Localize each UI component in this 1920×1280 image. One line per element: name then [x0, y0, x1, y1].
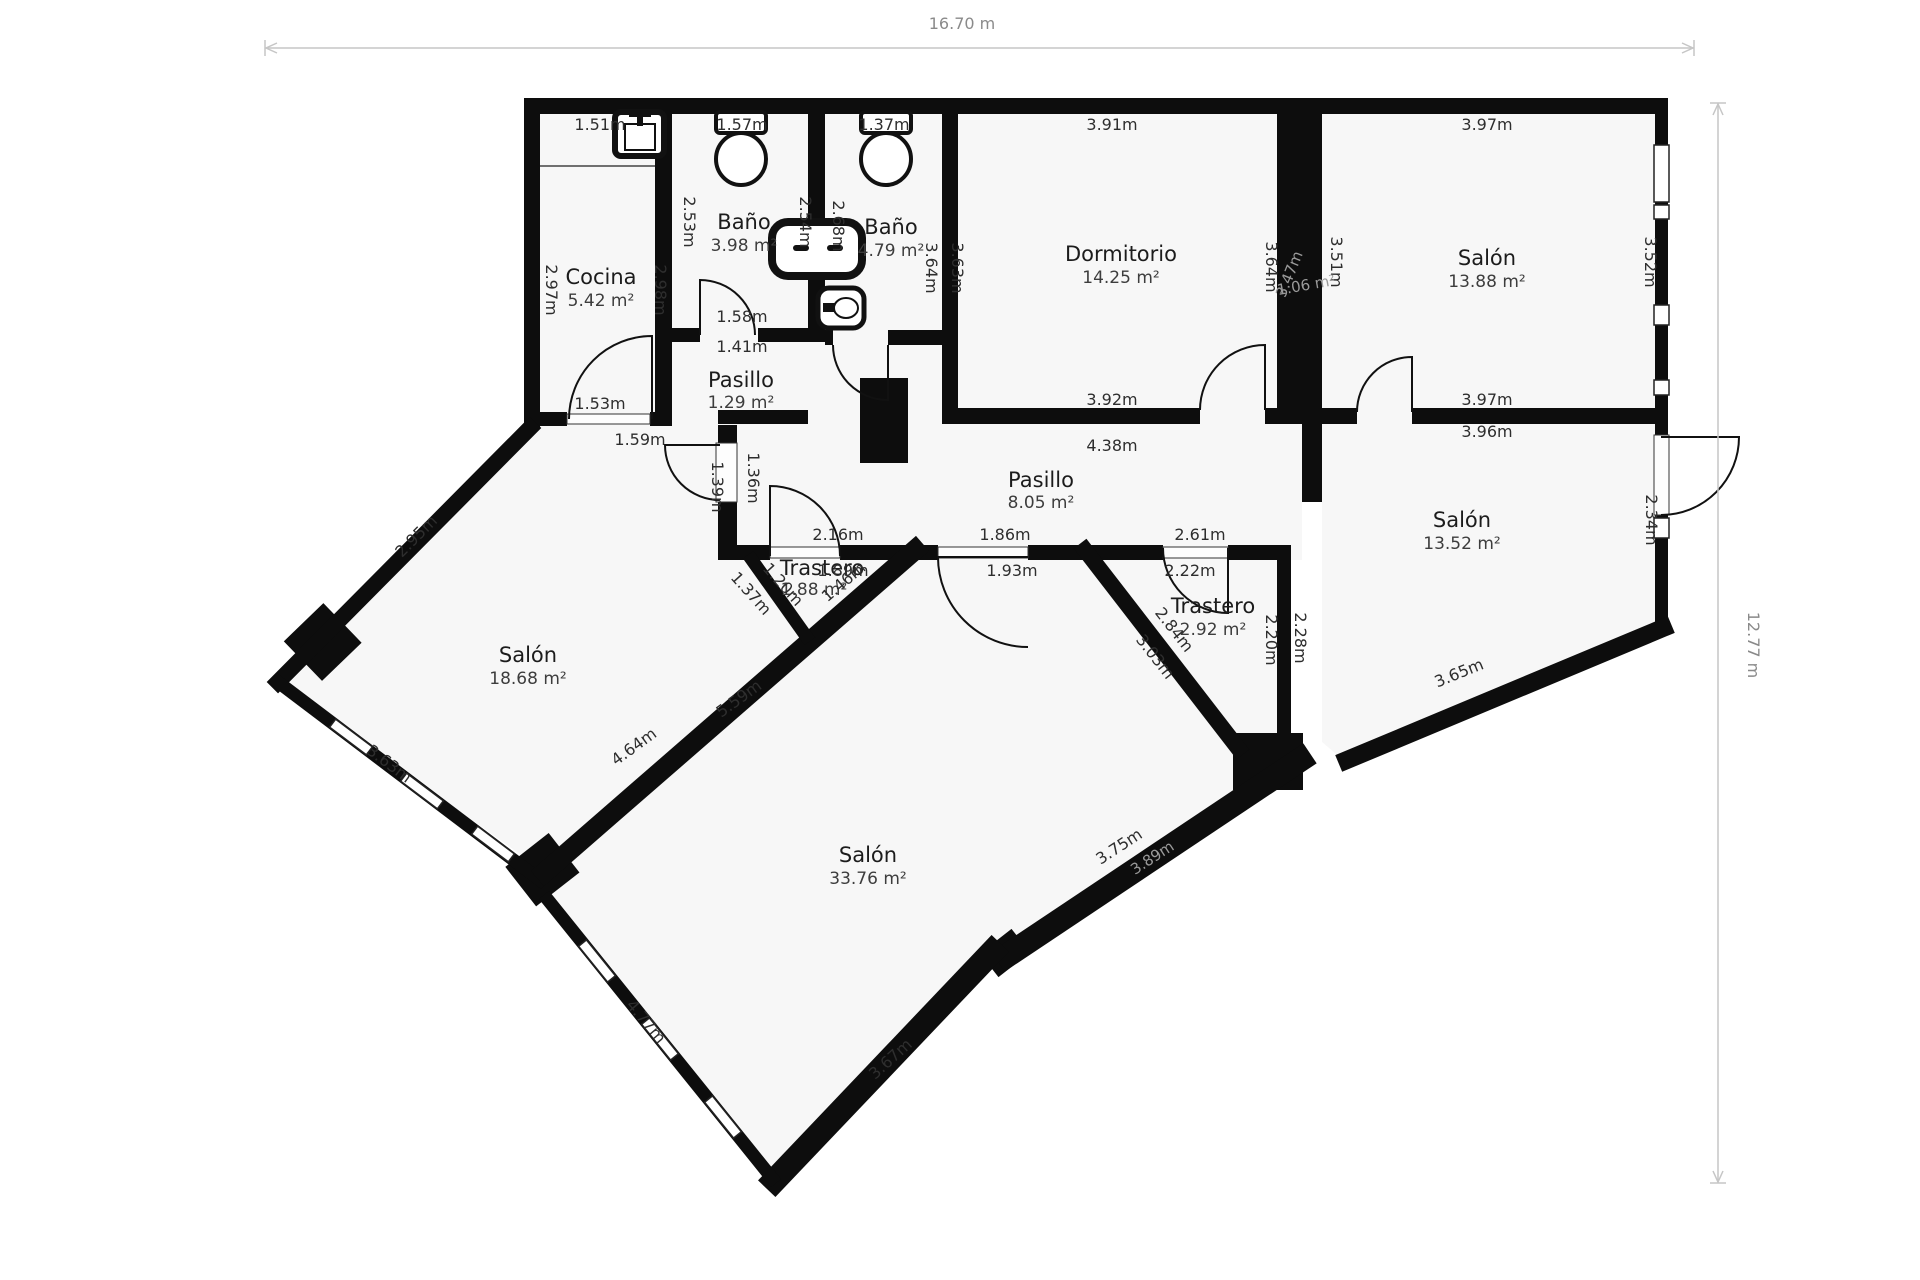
dim-label: 2.54m [796, 196, 815, 247]
dim-label: 3.92m [1086, 390, 1137, 409]
washbasin-icon [818, 288, 864, 328]
dim-label: 3.52m [1641, 236, 1660, 287]
room-label-pasillo-1: Pasillo [708, 368, 774, 392]
room-area-salon-w: 18.68 m² [489, 669, 566, 689]
room-label-salon-ne: Salón [1458, 246, 1516, 270]
dim-label: 1.93m [986, 561, 1037, 580]
room-label-salon-w: Salón [499, 643, 557, 667]
floor-plan-canvas: 16.70 m 12.77 m Cocina 5.42 m² Baño 3.98… [0, 0, 1920, 1280]
overall-width-label: 16.70 m [929, 14, 995, 33]
dim-label: 1.59m [614, 430, 665, 449]
dim-label: 1.57m [716, 115, 767, 134]
dim-label: 1.58m [716, 307, 767, 326]
dim-label: 1.36m [744, 452, 763, 503]
room-label-salon-e: Salón [1433, 508, 1491, 532]
dim-label: 1.41m [716, 337, 767, 356]
dim-label: 3.63m [948, 242, 967, 293]
dim-label: 3.64m [922, 242, 941, 293]
room-area-salon-s: 33.76 m² [829, 869, 906, 889]
room-label-banyo-1: Baño [717, 210, 770, 234]
room-area-banyo-2: 4.79 m² [858, 241, 925, 261]
room-area-banyo-1: 3.98 m² [711, 236, 778, 256]
overall-height-label: 12.77 m [1744, 612, 1763, 678]
dim-label: 3.96m [1461, 422, 1512, 441]
room-area-dormitorio: 14.25 m² [1082, 268, 1159, 288]
dim-label: 1.37m [858, 115, 909, 134]
room-area-pasillo-2: 8.05 m² [1008, 493, 1075, 513]
room-label-pasillo-2: Pasillo [1008, 468, 1074, 492]
dim-label: 2.53m [680, 196, 699, 247]
room-area-pasillo-1: 1.29 m² [708, 393, 775, 413]
dim-label: 2.22m [1164, 561, 1215, 580]
room-area-salon-e: 13.52 m² [1423, 534, 1500, 554]
dim-label: 2.61m [1174, 525, 1225, 544]
floor-plan-drawing: 16.70 m 12.77 m Cocina 5.42 m² Baño 3.98… [0, 0, 1920, 1280]
room-label-cocina: Cocina [565, 265, 636, 289]
dim-label: 3.97m [1461, 390, 1512, 409]
dim-label: 1.39m [708, 461, 727, 512]
dim-label: 1.53m [574, 394, 625, 413]
dim-label: 1.51m [574, 115, 625, 134]
dim-label: 3.97m [1461, 115, 1512, 134]
dim-label: 2.68m [829, 200, 848, 251]
room-label-trastero-2: Trastero [1170, 594, 1255, 618]
dim-label: 4.38m [1086, 436, 1137, 455]
dim-label: 2.34m [1642, 494, 1661, 545]
dim-label: 1.86m [979, 525, 1030, 544]
room-label-salon-s: Salón [839, 843, 897, 867]
room-area-salon-ne: 13.88 m² [1448, 272, 1525, 292]
room-area-cocina: 5.42 m² [568, 291, 635, 311]
dim-label: 2.20m [1262, 614, 1281, 665]
room-label-banyo-2: Baño [864, 215, 917, 239]
dim-label: 2.98m [651, 264, 670, 315]
dim-label: 2.97m [542, 264, 561, 315]
dim-label: 3.91m [1086, 115, 1137, 134]
dim-label: 2.28m [1291, 612, 1310, 663]
dim-label: 2.16m [812, 525, 863, 544]
room-label-dormitorio: Dormitorio [1065, 242, 1177, 266]
